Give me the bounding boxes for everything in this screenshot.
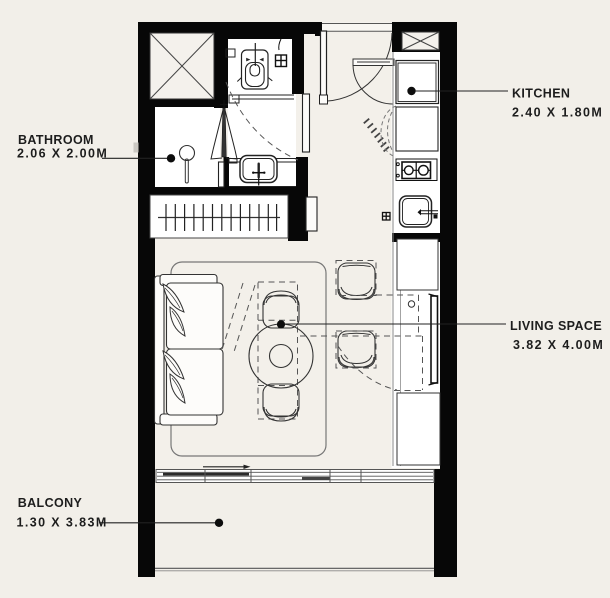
svg-text:LIVING SPACE: LIVING SPACE: [510, 319, 602, 333]
svg-text:1.30 X 3.83M: 1.30 X 3.83M: [17, 516, 108, 530]
svg-text:BALCONY: BALCONY: [18, 496, 83, 510]
svg-text:2.40 X 1.80M: 2.40 X 1.80M: [512, 106, 603, 120]
svg-text:2.06 X 2.00M: 2.06 X 2.00M: [17, 147, 108, 161]
svg-text:3.82 X 4.00M: 3.82 X 4.00M: [513, 338, 604, 352]
svg-text:BATHROOM: BATHROOM: [18, 133, 94, 147]
svg-text:KITCHEN: KITCHEN: [512, 87, 570, 101]
